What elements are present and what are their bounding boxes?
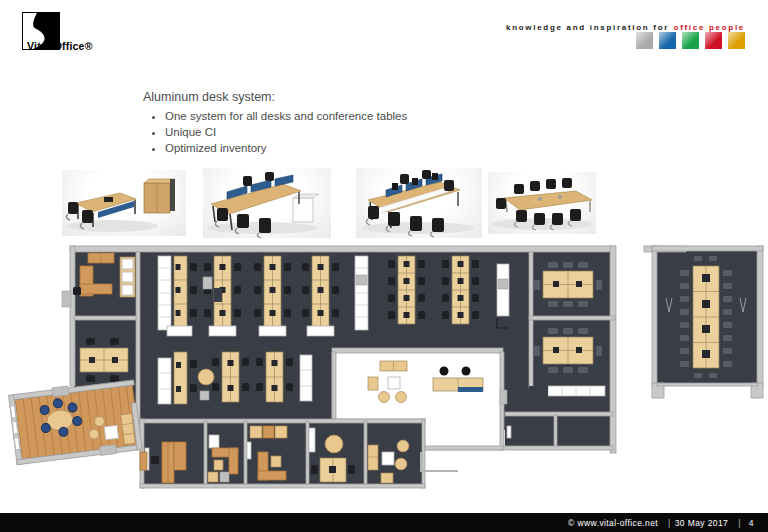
footer-divider: | [738,518,741,528]
footer-bar: © www.vital-office.net | 30 May 2017 | 4 [0,513,768,532]
conference-room-plan [644,246,763,398]
footer-divider: | [668,518,671,528]
footer-date: 30 May 2017 [675,518,729,528]
lounge-room [8,378,142,466]
entrance-porch [421,452,458,471]
footer-copyright: © www.vital-office.net [568,518,658,528]
main-floor-plan [8,246,616,488]
wall-right [610,246,616,453]
wall-top [70,246,615,252]
floor-plan [0,0,768,532]
footer-page-number: 4 [749,518,754,528]
